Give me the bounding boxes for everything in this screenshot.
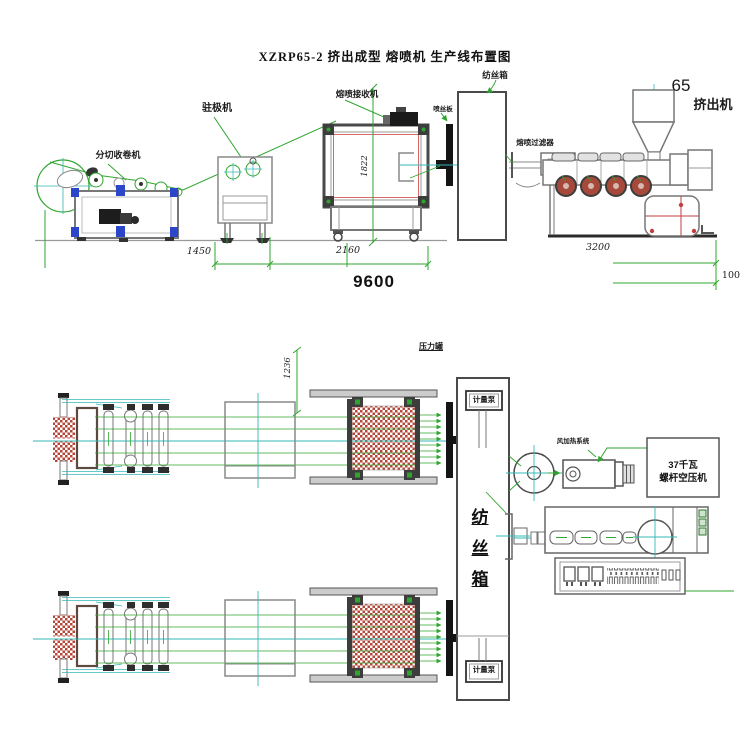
label-spinneret: 喷丝板	[429, 106, 457, 113]
diagram-title: XZRP65-2 挤出成型 熔喷机 生产线布置图	[235, 46, 535, 65]
plan-row-1	[33, 390, 463, 488]
spinning-box-char-2: 丝	[472, 534, 489, 559]
label-spinning-box-vertical: 纺 丝 箱	[464, 503, 496, 590]
layout-diagram: XZRP65-2 挤出成型 熔喷机 生产线布置图 分切收卷机 驻极机 熔喷接收机…	[0, 0, 750, 738]
dim-2160: 2160	[326, 245, 370, 256]
label-metering-pump-upper: 计量泵	[466, 396, 502, 404]
meltblown-receiver-drawing	[323, 100, 429, 241]
spinning-box-char-3: 箱	[472, 565, 489, 590]
label-metering-pump-lower: 计量泵	[466, 666, 502, 674]
dim-3200: 3200	[576, 242, 620, 253]
diagram-linework	[0, 0, 750, 738]
dimension-lines-top	[212, 237, 719, 290]
label-electret-machine: 驻极机	[197, 103, 237, 114]
plan-row-2	[33, 588, 463, 686]
slitter-winder-drawing	[34, 158, 182, 242]
electret-machine-drawing	[214, 117, 272, 244]
dim-100: 100	[714, 270, 748, 281]
label-meltblown-receiver: 熔喷接收机	[331, 90, 383, 99]
label-extruder: 挤出机	[687, 98, 739, 112]
dim-1236: 1236	[283, 351, 295, 385]
label-spinning-box: 纺丝箱	[478, 71, 512, 80]
label-melt-filter: 熔喷过滤器	[511, 139, 559, 147]
spinning-box-char-1: 纺	[472, 503, 489, 528]
compressor-power: 37千瓦	[647, 459, 719, 472]
compressor-name: 螺杆空压机	[647, 472, 719, 485]
label-pressure-tank: 压力罐	[411, 343, 451, 352]
label-compressor: 37千瓦 螺杆空压机	[647, 459, 719, 485]
control-panel-drawing	[555, 558, 734, 594]
air-heating-drawing	[506, 445, 648, 501]
label-air-heating-system: 风加热系统	[549, 438, 597, 445]
dim-1450: 1450	[178, 246, 220, 257]
label-slitter-winder: 分切收卷机	[88, 151, 148, 161]
spinning-box-drawing	[458, 80, 506, 240]
dim-receiver-height: 1822	[360, 149, 372, 183]
label-extruder-model: 65	[664, 77, 698, 96]
dim-total-9600: 9600	[338, 272, 410, 292]
